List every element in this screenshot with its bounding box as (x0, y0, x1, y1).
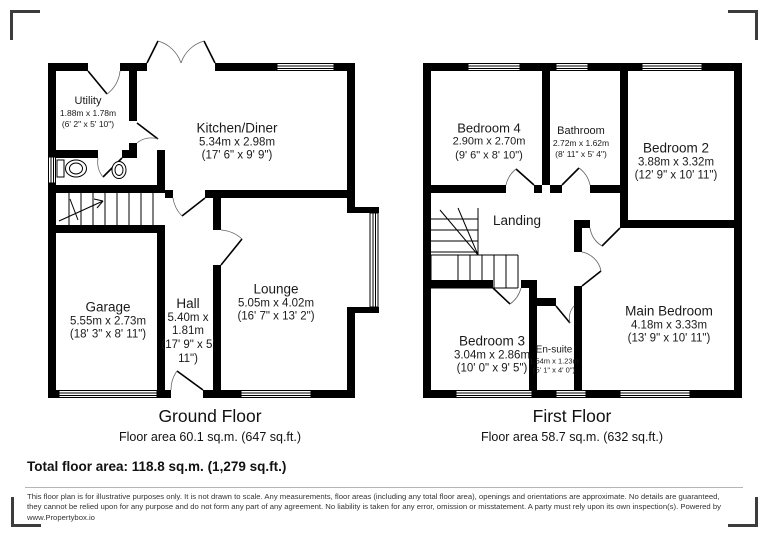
room-label-garage: Garage 5.55m x 2.73m (18' 3" x 8' 11") (70, 299, 146, 342)
room-name: Kitchen/Diner (196, 120, 277, 136)
wc-window-icon (49, 157, 56, 183)
ground-floor-plan: Utility 1.88m x 1.78m (6' 2" x 5' 10") K… (45, 40, 380, 400)
room-name: En-suite (529, 345, 579, 357)
garage-door-icon (59, 391, 157, 398)
room-dims-imperial: (12' 9" x 10' 11") (635, 170, 718, 184)
room-name: Bedroom 3 (454, 333, 530, 349)
room-label-hall: Hall 5.40m x 1.81m (17' 9" x 5' 11") (159, 296, 217, 366)
room-dims-imperial: (18' 3" x 8' 11") (70, 329, 146, 343)
room-name: Lounge (237, 281, 314, 297)
room-label-bedroom-4: Bedroom 4 2.90m x 2.70m (9' 6" x 8' 10") (453, 121, 526, 164)
bedroom4-window-icon (468, 64, 520, 71)
room-dims-metric: 2.90m x 2.70m (453, 136, 526, 150)
bedroom3-window-icon (456, 391, 532, 398)
room-label-bathroom: Bathroom 2.72m x 1.62m (8' 11" x 5' 4") (553, 125, 609, 159)
main-bedroom-window-icon (620, 391, 690, 398)
corner-bracket-bottom-right (728, 497, 758, 527)
room-label-bedroom-2: Bedroom 2 3.88m x 3.32m (12' 9" x 10' 11… (635, 140, 718, 183)
room-dims-imperial: (9' 6" x 8' 10") (453, 150, 526, 164)
room-name: Utility (60, 95, 116, 108)
corner-bracket-top-left (10, 10, 40, 40)
ground-floor-area: Floor area 60.1 sq.m. (647 sq.ft.) (40, 430, 380, 444)
room-name: Main Bedroom (625, 303, 713, 319)
room-dims-imperial: (10' 0" x 9' 5") (454, 363, 530, 377)
room-dims-imperial: (17' 9" x 5' 11") (159, 339, 217, 366)
room-dims-imperial: (5' 1" x 4' 0") (529, 366, 579, 375)
total-floor-area: Total floor area: 118.8 sq.m. (1,279 sq.… (27, 459, 286, 474)
room-dims-imperial: (13' 9" x 10' 11") (625, 333, 713, 347)
kitchen-window-icon (277, 64, 334, 71)
toilet-icon (57, 160, 87, 177)
room-dims-metric: 2.72m x 1.62m (553, 138, 609, 149)
room-dims-imperial: (16' 7" x 13' 2") (237, 311, 314, 325)
corner-bracket-top-right (728, 10, 758, 40)
room-label-lounge: Lounge 5.05m x 4.02m (16' 7" x 13' 2") (237, 281, 314, 324)
first-floor-plan: Bedroom 4 2.90m x 2.70m (9' 6" x 8' 10")… (420, 40, 745, 400)
room-dims-imperial: (6' 2" x 5' 10") (60, 118, 116, 129)
room-dims-metric: 5.55m x 2.73m (70, 315, 146, 329)
bedroom2-window-icon (642, 64, 702, 71)
room-dims-metric: 5.40m x 1.81m (159, 312, 217, 339)
disclaimer-text: This floor plan is for illustrative purp… (27, 492, 727, 523)
first-floor-title: First Floor (402, 406, 742, 427)
room-dims-imperial: (8' 11" x 5' 4") (553, 148, 609, 159)
floor-plan-page: Utility 1.88m x 1.78m (6' 2" x 5' 10") K… (0, 0, 768, 537)
first-floor-caption: First Floor Floor area 58.7 sq.m. (632 s… (402, 406, 742, 444)
ground-floor-title: Ground Floor (40, 406, 380, 427)
room-label-en-suite: En-suite 1.54m x 1.23m (5' 1" x 4' 0") (529, 345, 579, 376)
room-dims-metric: 5.34m x 2.98m (196, 136, 277, 150)
room-label-utility: Utility 1.88m x 1.78m (6' 2" x 5' 10") (60, 95, 116, 129)
room-name: Bedroom 2 (635, 140, 718, 156)
room-label-kitchen-diner: Kitchen/Diner 5.34m x 2.98m (17' 6" x 9'… (196, 120, 277, 163)
room-dims-metric: 5.05m x 4.02m (237, 297, 314, 311)
room-dims-metric: 3.04m x 2.86m (454, 349, 530, 363)
divider-line (25, 487, 743, 488)
room-label-bedroom-3: Bedroom 3 3.04m x 2.86m (10' 0" x 9' 5") (454, 333, 530, 376)
room-label-main-bedroom: Main Bedroom 4.18m x 3.33m (13' 9" x 10'… (625, 303, 713, 346)
room-dims-imperial: (17' 6" x 9' 9") (196, 150, 277, 164)
room-name: Bathroom (553, 125, 609, 138)
first-floor-area: Floor area 58.7 sq.m. (632 sq.ft.) (402, 430, 742, 444)
room-dims-metric: 1.54m x 1.23m (529, 357, 579, 366)
bathroom-window-icon (556, 64, 588, 71)
room-dims-metric: 3.88m x 3.32m (635, 156, 718, 170)
room-dims-metric: 1.88m x 1.78m (60, 108, 116, 119)
room-label-landing: Landing (493, 213, 541, 229)
room-name: Bedroom 4 (453, 121, 526, 136)
sink-icon (112, 162, 126, 179)
bay-window-icon (370, 213, 378, 307)
ensuite-window-icon (556, 391, 586, 398)
lounge-window-icon (241, 391, 311, 398)
room-name: Hall (159, 296, 217, 312)
room-name: Landing (493, 213, 541, 229)
ground-stairs-icon (59, 193, 153, 225)
room-name: Garage (70, 299, 146, 315)
ground-floor-caption: Ground Floor Floor area 60.1 sq.m. (647 … (40, 406, 380, 444)
room-dims-metric: 4.18m x 3.33m (625, 319, 713, 333)
